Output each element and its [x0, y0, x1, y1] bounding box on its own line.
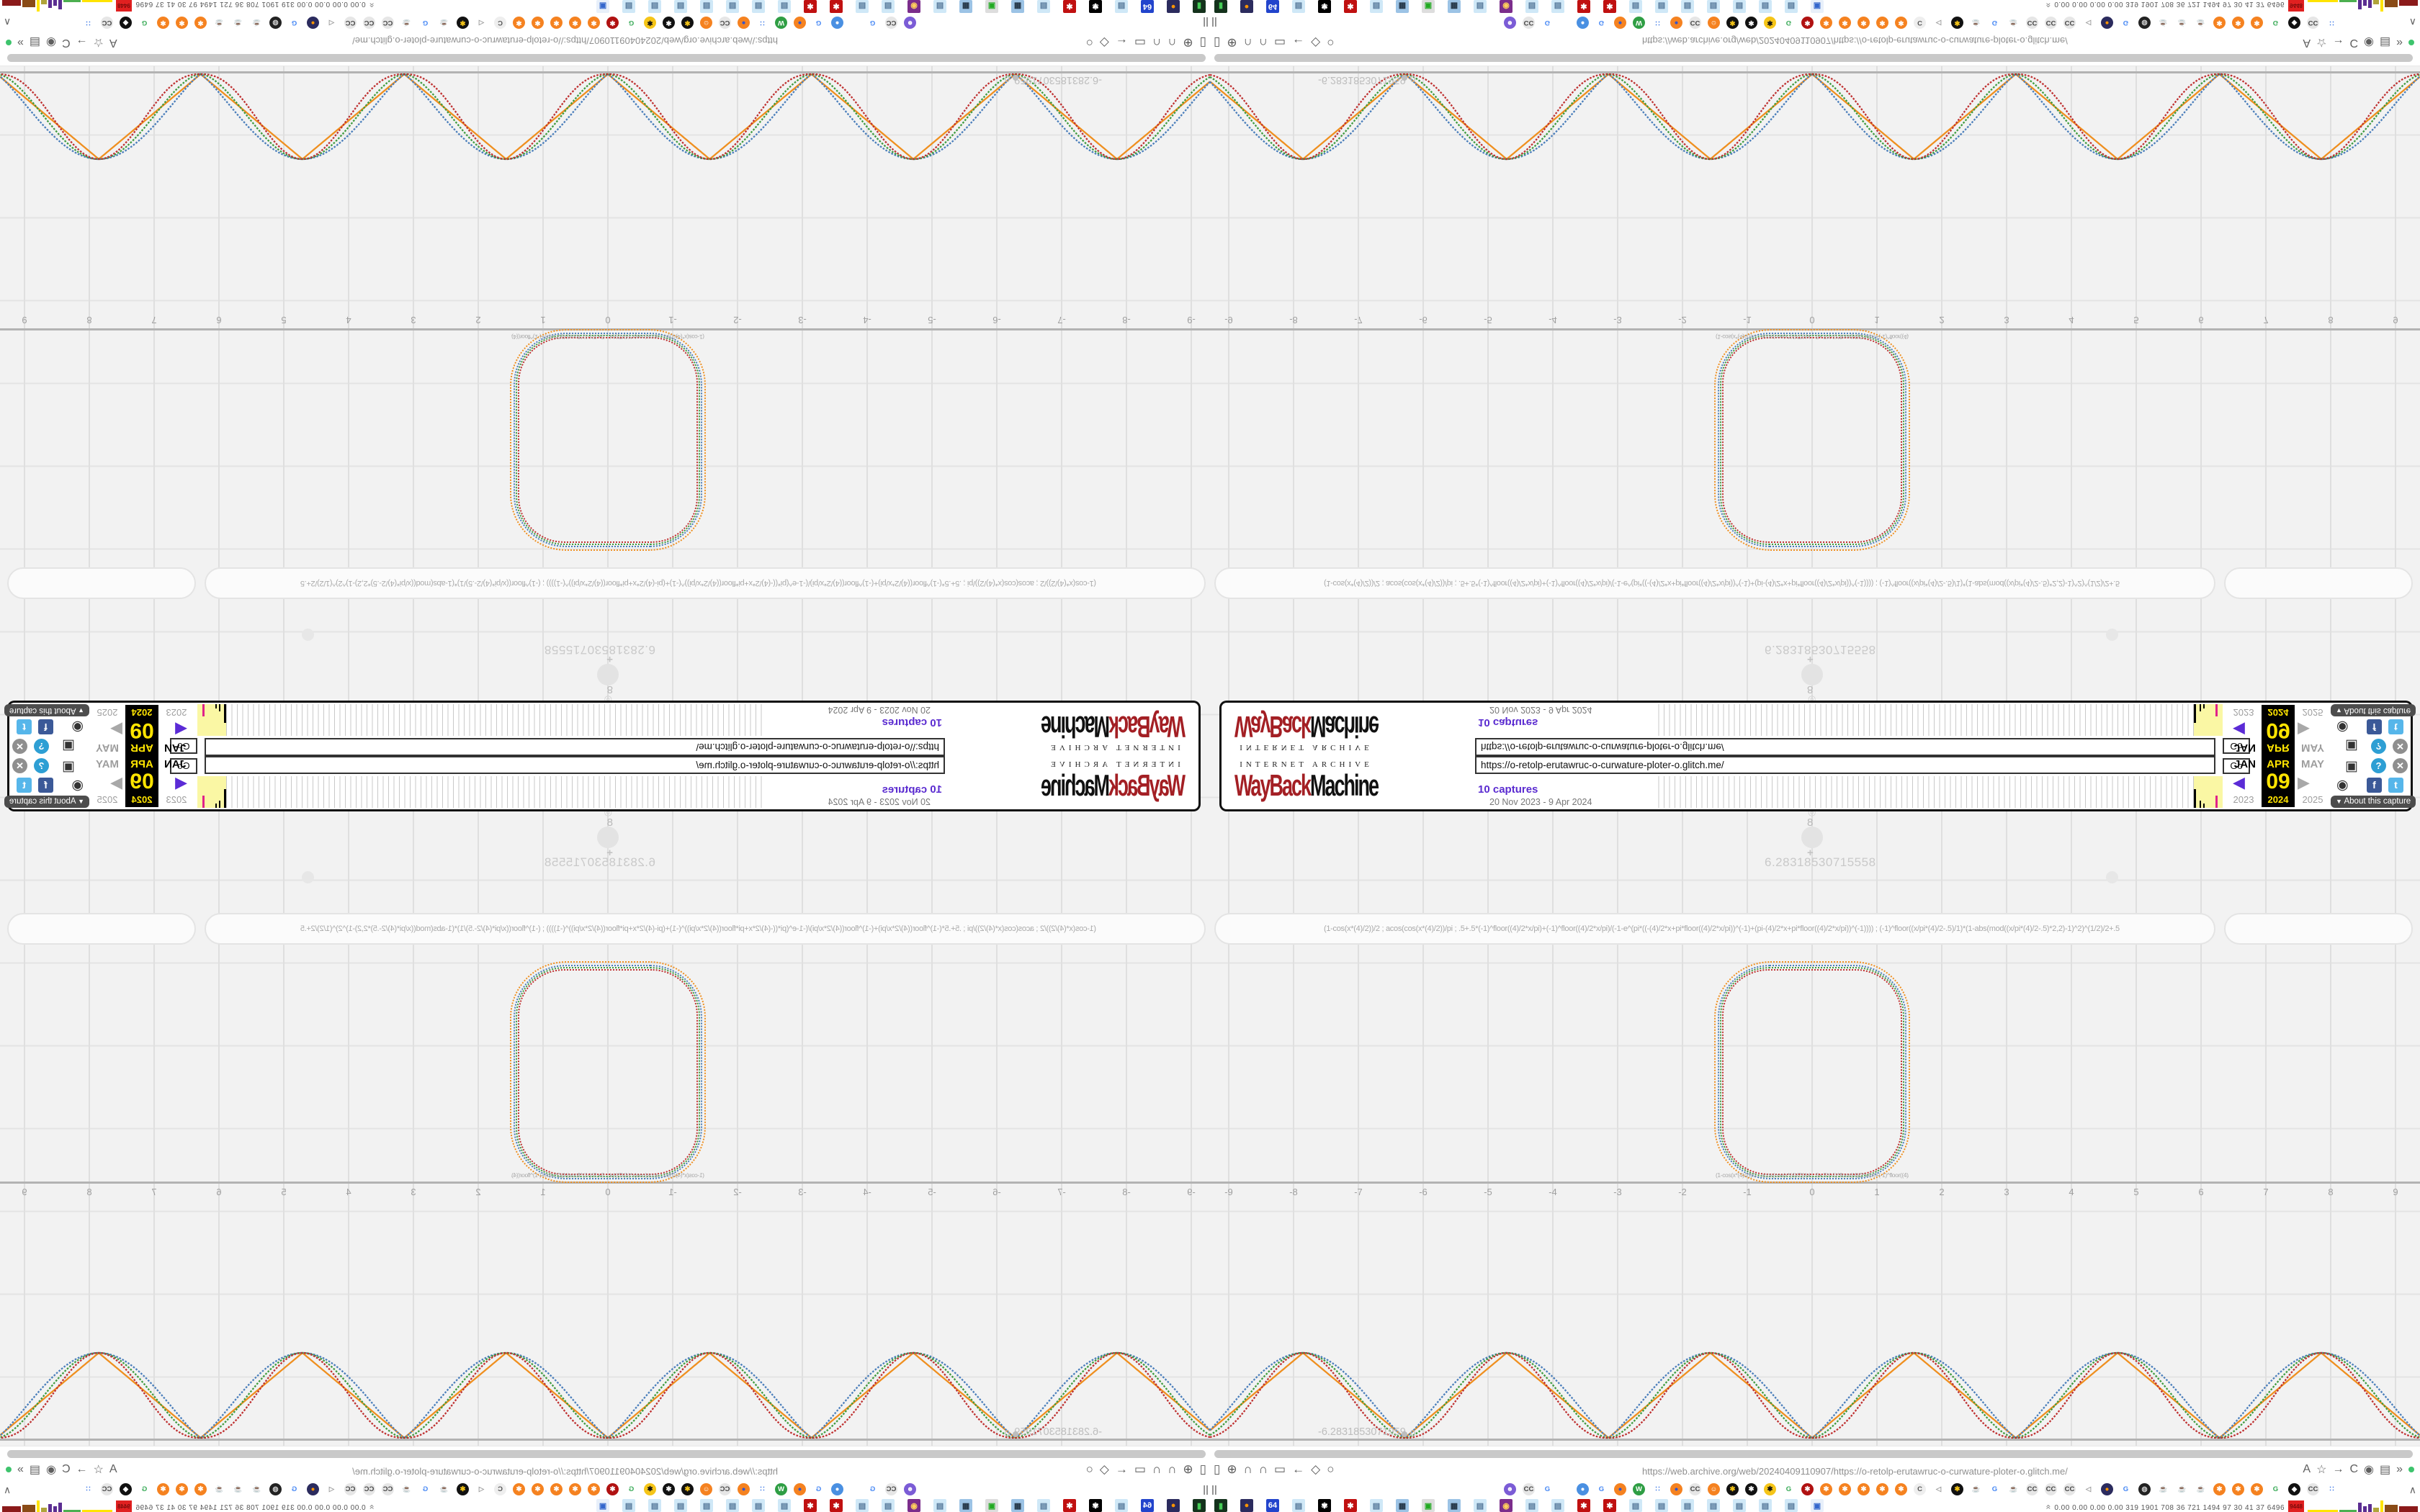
formula-input[interactable]: (1-cos(x*(4)/2))/2 ; acos(cos(x*(4)/2))/…	[1214, 567, 2215, 599]
notepad-tab[interactable]: ▤	[778, 1499, 791, 1512]
cc-favicon[interactable]: CC	[2026, 1483, 2038, 1495]
notepad-tab[interactable]: ▤	[1655, 0, 1668, 13]
cc-favicon[interactable]: CC	[2307, 17, 2319, 29]
java-favicon[interactable]: ☕	[2007, 17, 2020, 29]
forward-icon[interactable]: →	[76, 36, 88, 49]
orange-gear-favicon[interactable]: ✱	[1839, 17, 1851, 29]
address-bar-url[interactable]: https://web.archive.org/web/202404091109…	[352, 35, 778, 46]
forward-icon[interactable]: →	[2332, 36, 2344, 49]
secondary-input[interactable]	[7, 913, 196, 945]
shield-icon[interactable]: ◇	[1311, 1462, 1320, 1477]
captures-link[interactable]: 10 captures	[882, 783, 942, 796]
moth-favicon[interactable]: ✱	[1951, 17, 1963, 29]
muted-speaker-favicon[interactable]: ◁	[2082, 17, 2094, 29]
overflow-chevrons-icon[interactable]: »	[2396, 1463, 2403, 1476]
prev-capture-arrow[interactable]: ◀	[175, 720, 187, 739]
close-icon[interactable]: ✕	[12, 758, 27, 773]
shield-icon[interactable]: ◇	[1100, 1462, 1109, 1477]
google-favicon[interactable]: G	[288, 1483, 300, 1495]
smiley-favicon[interactable]: ☺	[700, 17, 712, 29]
java-favicon[interactable]: ☕	[2007, 1483, 2020, 1495]
orange-gear-favicon[interactable]: ✱	[1876, 1483, 1888, 1495]
lock-icon[interactable]: ○	[1086, 35, 1093, 50]
year-2025[interactable]: 2025	[91, 794, 124, 805]
red-gear-tab[interactable]: ✱	[1577, 0, 1590, 13]
dots-favicon[interactable]: ∷	[1652, 17, 1664, 29]
ghost-favicon[interactable]: ◆	[2288, 1483, 2300, 1495]
prev-capture-arrow[interactable]: ◀	[2233, 773, 2245, 792]
captures-link[interactable]: 10 captures	[1478, 716, 1538, 729]
close-icon[interactable]: ✕	[2393, 739, 2408, 754]
orange-gear-favicon[interactable]: ✱	[1857, 17, 1870, 29]
java-favicon[interactable]: ☕	[400, 17, 413, 29]
next-capture-arrow[interactable]: ▶	[2298, 720, 2310, 739]
year-2023[interactable]: 2023	[160, 794, 193, 805]
forward-icon[interactable]: →	[2332, 1463, 2344, 1476]
google-favicon[interactable]: G	[1783, 17, 1795, 29]
muted-speaker-favicon[interactable]: ◁	[326, 1483, 338, 1495]
monitor-tab[interactable]: ▣	[985, 1499, 998, 1512]
cc-favicon[interactable]: CC	[344, 1483, 357, 1495]
cc-favicon[interactable]: CC	[382, 1483, 394, 1495]
orange-gear-favicon[interactable]: ✱	[1820, 17, 1832, 29]
google-favicon[interactable]: G	[866, 1483, 879, 1495]
ghost-favicon[interactable]: ◆	[120, 1483, 132, 1495]
chevron-up-icon[interactable]: ∧	[4, 16, 11, 28]
shield-favicon[interactable]: W	[775, 17, 787, 29]
dots-favicon[interactable]: ∷	[82, 1483, 94, 1495]
muted-speaker-favicon[interactable]: ◁	[475, 1483, 488, 1495]
month-apr[interactable]: APR	[125, 758, 158, 770]
dark-globe-icon[interactable]: ◉	[46, 1462, 56, 1477]
notepad-tab[interactable]: ▤	[856, 0, 869, 13]
monitor-tab[interactable]: ▣	[1422, 1499, 1435, 1512]
orange-gear-favicon[interactable]: ✱	[1839, 1483, 1851, 1495]
orange-gear-favicon[interactable]: ✱	[2232, 17, 2244, 29]
folder-icon[interactable]: ▭	[1134, 35, 1146, 50]
google-favicon[interactable]: G	[138, 17, 151, 29]
month-jan[interactable]: JAN	[2228, 742, 2262, 754]
java-favicon[interactable]: ☕	[2195, 1483, 2207, 1495]
notepad-tab[interactable]: ▤	[752, 0, 765, 13]
shield-favicon[interactable]: W	[775, 1483, 787, 1495]
orange-favicon[interactable]: ●	[738, 17, 750, 29]
cc-favicon[interactable]: CC	[719, 17, 731, 29]
address-bar-url[interactable]: https://web.archive.org/web/202404091109…	[1642, 35, 2068, 46]
notepad-tab[interactable]: ▤	[726, 0, 739, 13]
orange-gear-favicon[interactable]: ✱	[2232, 1483, 2244, 1495]
orange-gear-favicon[interactable]: ✱	[194, 1483, 207, 1495]
notepad-tab[interactable]: ▤	[1629, 0, 1642, 13]
java-favicon[interactable]: ☕	[232, 17, 244, 29]
secondary-input[interactable]	[2224, 913, 2413, 945]
java-favicon[interactable]: ☕	[2157, 17, 2169, 29]
muted-speaker-favicon[interactable]: ◁	[326, 17, 338, 29]
floppy64-tab[interactable]: 64	[1141, 1499, 1154, 1512]
year-2023[interactable]: 2023	[160, 707, 193, 718]
notepad-tab[interactable]: ▤	[1707, 0, 1720, 13]
calculator-tab[interactable]: ▦	[1011, 0, 1024, 13]
wayback-url-input[interactable]	[205, 738, 945, 756]
headset-icon-2[interactable]: ∩	[1259, 1462, 1268, 1477]
facebook-icon[interactable]: f	[38, 719, 53, 734]
java-favicon[interactable]: ☕	[438, 17, 450, 29]
lock-icon[interactable]: ○	[1327, 1462, 1334, 1477]
notepad-tab[interactable]: ▤	[933, 1499, 946, 1512]
reload-icon[interactable]: C	[2349, 36, 2358, 49]
smiley-favicon[interactable]: ☺	[1708, 17, 1720, 29]
red-gear-tab[interactable]: ✱	[804, 1499, 817, 1512]
notepad-tab[interactable]: ▤	[1759, 0, 1772, 13]
google-favicon[interactable]: G	[1989, 1483, 2001, 1495]
facebook-icon[interactable]: f	[2367, 778, 2382, 793]
chevron-up-icon[interactable]: ∧	[2409, 16, 2416, 28]
cc-favicon[interactable]: CC	[2307, 1483, 2319, 1495]
google-favicon[interactable]: G	[866, 17, 879, 29]
orange-gear-favicon[interactable]: ✱	[513, 1483, 525, 1495]
help-icon[interactable]: ?	[2371, 739, 2386, 754]
discord-favicon[interactable]: ☻	[1504, 1483, 1516, 1495]
month-may[interactable]: MAY	[91, 758, 124, 770]
java-favicon[interactable]: ☕	[400, 1483, 413, 1495]
expand-window-icon[interactable]: ▣	[2345, 758, 2358, 775]
moth-favicon[interactable]: ✱	[457, 17, 469, 29]
captures-link[interactable]: 10 captures	[882, 716, 942, 729]
red-gear-favicon[interactable]: ✱	[606, 1483, 619, 1495]
notepad-tab[interactable]: ▤	[1629, 1499, 1642, 1512]
firefox-favicon[interactable]: ●	[307, 17, 319, 29]
cc-favicon[interactable]: CC	[363, 1483, 375, 1495]
window-tab[interactable]: ▣	[1811, 1499, 1824, 1512]
notepad-tab[interactable]: ▤	[622, 0, 635, 13]
month-apr[interactable]: APR	[125, 742, 158, 754]
wave-marker-dot[interactable]	[1402, 75, 1407, 81]
gap[interactable]	[1560, 17, 1570, 29]
orange-gear-favicon[interactable]: ✱	[569, 17, 581, 29]
moth-favicon[interactable]: ✱	[681, 1483, 694, 1495]
notepad-tab[interactable]: ▤	[1370, 0, 1383, 13]
close-icon[interactable]: ✕	[2393, 758, 2408, 773]
year-2024[interactable]: 2024	[125, 794, 158, 805]
java-favicon[interactable]: ☕	[232, 1483, 244, 1495]
orange-gear-favicon[interactable]: ✱	[176, 17, 188, 29]
month-may[interactable]: MAY	[2296, 758, 2329, 770]
terminal-tab[interactable]: ▮	[1214, 1499, 1227, 1512]
year-2024[interactable]: 2024	[2262, 707, 2295, 718]
address-bar-url[interactable]: https://web.archive.org/web/202404091109…	[1642, 1466, 2068, 1477]
twitter-icon[interactable]: t	[17, 778, 32, 793]
calculator-tab[interactable]: ▦	[1396, 1499, 1409, 1512]
cc-favicon[interactable]: CC	[1689, 17, 1701, 29]
google-favicon[interactable]: G	[1989, 17, 2001, 29]
gap[interactable]	[850, 1483, 860, 1495]
red-gear-tab[interactable]: ✱	[804, 0, 817, 13]
drag-handle-dot[interactable]	[597, 827, 619, 848]
year-2025[interactable]: 2025	[2296, 707, 2329, 718]
dots-favicon[interactable]: ∷	[756, 1483, 768, 1495]
firefox-favicon[interactable]: ●	[2101, 1483, 2113, 1495]
month-apr[interactable]: APR	[2262, 758, 2295, 770]
java-favicon[interactable]: ☕	[251, 17, 263, 29]
notepad-tab[interactable]: ▤	[1115, 0, 1128, 13]
notepad-tab[interactable]: ▤	[1551, 1499, 1564, 1512]
wayback-machine-logo[interactable]: WayBackMachine	[1229, 708, 1384, 743]
trash-icon[interactable]: ▯	[1214, 1462, 1220, 1477]
cc-favicon[interactable]: CC	[101, 1483, 113, 1495]
headset-icon[interactable]: ∩	[1244, 1462, 1252, 1477]
red-gear-favicon[interactable]: ✱	[606, 17, 619, 29]
capture-sparkline[interactable]	[197, 776, 766, 808]
wave-marker-dot[interactable]	[1402, 1431, 1407, 1437]
about-this-capture-button[interactable]: ▼ About this capture	[4, 704, 89, 716]
notepad-tab[interactable]: ▤	[1525, 0, 1538, 13]
folder-icon[interactable]: ▭	[1274, 35, 1286, 50]
globe-icon[interactable]: ⊕	[1183, 1462, 1193, 1477]
orange-gear-favicon[interactable]: ✱	[532, 17, 544, 29]
c-favicon[interactable]: C	[494, 17, 506, 29]
lock-icon[interactable]: ○	[1327, 35, 1334, 50]
year-2024[interactable]: 2024	[2262, 794, 2295, 805]
forward-icon[interactable]: →	[76, 1463, 88, 1476]
back-arrow-icon[interactable]: ←	[1116, 35, 1128, 50]
wave-marker-dot[interactable]	[1013, 1431, 1018, 1437]
orange-gear-favicon[interactable]: ✱	[1820, 1483, 1832, 1495]
month-jan[interactable]: JAN	[158, 758, 192, 770]
java-favicon[interactable]: ☕	[2195, 17, 2207, 29]
calculator-tab[interactable]: ▦	[1011, 1499, 1024, 1512]
captures-link[interactable]: 10 captures	[1478, 783, 1538, 796]
help-icon[interactable]: ?	[2371, 758, 2386, 773]
month-apr[interactable]: APR	[2262, 742, 2295, 754]
drag-handle-dot[interactable]	[1801, 664, 1823, 685]
google-favicon[interactable]: G	[288, 17, 300, 29]
moth-favicon[interactable]: ✱	[681, 17, 694, 29]
owl-tab[interactable]: ◉	[907, 1499, 920, 1512]
back-arrow-icon[interactable]: ←	[1116, 1462, 1128, 1477]
reload-icon[interactable]: C	[62, 1463, 71, 1476]
shield-icon[interactable]: ◇	[1311, 35, 1320, 50]
cc-favicon[interactable]: CC	[1689, 1483, 1701, 1495]
chevron-up-icon[interactable]: ∧	[4, 1484, 11, 1496]
monitor-tab[interactable]: ▣	[985, 0, 998, 13]
twitter-icon[interactable]: t	[2388, 778, 2403, 793]
orange-favicon[interactable]: ●	[1670, 1483, 1682, 1495]
java-favicon[interactable]: ☕	[1970, 17, 1982, 29]
about-this-capture-button[interactable]: ▼ About this capture	[2331, 796, 2416, 808]
java-favicon[interactable]: ☕	[438, 1483, 450, 1495]
firefox-tab[interactable]: ●	[1167, 1499, 1180, 1512]
notepad-tab[interactable]: ▤	[1474, 1499, 1487, 1512]
year-2025[interactable]: 2025	[2296, 794, 2329, 805]
floppy64-tab[interactable]: 64	[1141, 0, 1154, 13]
inkblot-tab[interactable]: ✾	[1318, 1499, 1331, 1512]
orange-gear-favicon[interactable]: ✱	[550, 1483, 563, 1495]
firefox-favicon[interactable]: ●	[307, 1483, 319, 1495]
twitter-icon[interactable]: t	[2388, 719, 2403, 734]
c-favicon[interactable]: C	[1914, 1483, 1926, 1495]
disc-favicon[interactable]: ◍	[269, 1483, 282, 1495]
red-gear-tab[interactable]: ✱	[1344, 0, 1357, 13]
notepad-tab[interactable]: ▤	[1037, 0, 1050, 13]
screenshot-icon[interactable]: ◉	[2336, 777, 2349, 793]
shield-favicon[interactable]: W	[1633, 1483, 1645, 1495]
java-favicon[interactable]: ☕	[213, 1483, 225, 1495]
yellow-gear-favicon[interactable]: ✱	[644, 17, 656, 29]
monitor-tab[interactable]: ▣	[1422, 0, 1435, 13]
wayback-machine-logo[interactable]: WayBackMachine	[1036, 708, 1191, 743]
wayback-machine-logo[interactable]: WayBackMachine	[1229, 769, 1384, 804]
notepad-tab[interactable]: ▤	[1707, 1499, 1720, 1512]
capture-sparkline[interactable]	[1654, 704, 2223, 736]
window-tab[interactable]: ▣	[596, 0, 609, 13]
google-favicon[interactable]: G	[625, 17, 637, 29]
orange-gear-favicon[interactable]: ✱	[1895, 1483, 1907, 1495]
google-favicon[interactable]: G	[812, 17, 825, 29]
google-favicon[interactable]: G	[1541, 1483, 1554, 1495]
terminal-tab[interactable]: ▮	[1193, 0, 1206, 13]
google-favicon[interactable]: G	[1595, 17, 1608, 29]
notepad-tab[interactable]: ▤	[1785, 1499, 1798, 1512]
orange-gear-favicon[interactable]: ✱	[569, 1483, 581, 1495]
wayback-machine-logo[interactable]: WayBackMachine	[1036, 769, 1191, 804]
window-tab[interactable]: ▣	[596, 1499, 609, 1512]
wave-marker-dot[interactable]	[1013, 75, 1018, 81]
google-favicon[interactable]: G	[2269, 1483, 2282, 1495]
expand-window-icon[interactable]: ▣	[62, 758, 75, 775]
muted-speaker-favicon[interactable]: ◁	[1932, 1483, 1945, 1495]
share-icon[interactable]: ▤	[2380, 1462, 2390, 1477]
next-capture-arrow[interactable]: ▶	[2298, 773, 2310, 792]
wayback-url-input[interactable]	[1475, 756, 2215, 774]
bookmark-star-icon[interactable]: ☆	[94, 35, 104, 50]
red-gear-tab[interactable]: ✱	[830, 1499, 843, 1512]
trash-icon[interactable]: ▯	[1200, 1462, 1206, 1477]
screenshot-icon[interactable]: ◉	[71, 777, 84, 793]
firefox-tab[interactable]: ●	[1167, 0, 1180, 13]
headset-icon-2[interactable]: ∩	[1152, 35, 1161, 50]
trash-icon[interactable]: ▯	[1214, 35, 1220, 50]
orange-gear-favicon[interactable]: ✱	[588, 17, 600, 29]
floppy64-tab[interactable]: 64	[1266, 0, 1279, 13]
notepad-tab[interactable]: ▤	[1785, 0, 1798, 13]
floppy64-tab[interactable]: 64	[1266, 1499, 1279, 1512]
orange-gear-favicon[interactable]: ✱	[2213, 1483, 2226, 1495]
orange-gear-favicon[interactable]: ✱	[157, 17, 169, 29]
calculator-tab[interactable]: ▦	[1396, 0, 1409, 13]
red-gear-favicon[interactable]: ✱	[1801, 1483, 1814, 1495]
google-favicon[interactable]: G	[1595, 1483, 1608, 1495]
translate-icon[interactable]: A	[2303, 36, 2311, 49]
notepad-tab[interactable]: ▤	[1037, 1499, 1050, 1512]
translate-icon[interactable]: A	[109, 1463, 117, 1476]
prev-capture-arrow[interactable]: ◀	[175, 773, 187, 792]
capture-day[interactable]: 09	[125, 770, 158, 794]
disc-favicon[interactable]: ◍	[2138, 1483, 2151, 1495]
google-favicon[interactable]: G	[1541, 17, 1554, 29]
java-favicon[interactable]: ☕	[2176, 17, 2188, 29]
year-2025[interactable]: 2025	[91, 707, 124, 718]
about-this-capture-button[interactable]: ▼ About this capture	[2331, 704, 2416, 716]
trash-icon[interactable]: ▯	[1200, 35, 1206, 50]
month-may[interactable]: MAY	[2296, 742, 2329, 754]
share-icon[interactable]: ▤	[2380, 35, 2390, 50]
notepad-tab[interactable]: ▤	[1733, 0, 1746, 13]
horizontal-scrollbar[interactable]	[1214, 54, 2413, 62]
back-arrow-icon[interactable]: ←	[1292, 35, 1304, 50]
dots-favicon[interactable]: ∷	[756, 17, 768, 29]
discord-favicon[interactable]: ☻	[904, 1483, 916, 1495]
dark-globe-icon[interactable]: ◉	[2364, 1462, 2374, 1477]
owl-tab[interactable]: ◉	[907, 0, 920, 13]
orange-favicon[interactable]: ●	[1614, 1483, 1626, 1495]
dark-globe-icon[interactable]: ◉	[2364, 35, 2374, 50]
dots-favicon[interactable]: ∷	[2326, 1483, 2338, 1495]
red-gear-tab[interactable]: ✱	[1603, 0, 1616, 13]
smiley-favicon[interactable]: ☺	[700, 1483, 712, 1495]
inkblot-tab[interactable]: ✾	[1089, 0, 1102, 13]
notepad-tab[interactable]: ▤	[622, 1499, 635, 1512]
cc-favicon[interactable]: CC	[344, 17, 357, 29]
notepad-tab[interactable]: ▤	[648, 1499, 661, 1512]
facebook-icon[interactable]: f	[2367, 719, 2382, 734]
drag-handle-dot[interactable]	[597, 664, 619, 685]
overflow-chevrons-icon[interactable]: »	[17, 1463, 24, 1476]
google-favicon[interactable]: G	[138, 1483, 151, 1495]
shield-icon[interactable]: ◇	[1100, 35, 1109, 50]
gear-favicon[interactable]: ✱	[663, 17, 675, 29]
capture-day[interactable]: 09	[2262, 770, 2295, 794]
notepad-tab[interactable]: ▤	[1655, 1499, 1668, 1512]
bookmark-star-icon[interactable]: ☆	[2316, 35, 2326, 50]
yellow-gear-favicon[interactable]: ✱	[1764, 1483, 1776, 1495]
formula-input[interactable]: (1-cos(x*(4)/2))/2 ; acos(cos(x*(4)/2))/…	[205, 913, 1206, 945]
moth-favicon[interactable]: ✱	[1951, 1483, 1963, 1495]
headset-icon[interactable]: ∩	[1244, 35, 1252, 50]
back-arrow-icon[interactable]: ←	[1292, 1462, 1304, 1477]
horizontal-scrollbar[interactable]	[7, 54, 1206, 62]
disc-favicon[interactable]: ◍	[2138, 17, 2151, 29]
capture-day[interactable]: 09	[125, 718, 158, 742]
orange-gear-favicon[interactable]: ✱	[194, 17, 207, 29]
cc-favicon[interactable]: CC	[719, 1483, 731, 1495]
horizontal-scrollbar[interactable]	[7, 1450, 1206, 1458]
screenshot-icon[interactable]: ◉	[71, 719, 84, 735]
gap[interactable]	[1560, 1483, 1570, 1495]
wayback-url-input[interactable]	[1475, 738, 2215, 756]
orange-gear-favicon[interactable]: ✱	[513, 17, 525, 29]
help-icon[interactable]: ?	[34, 739, 49, 754]
cc-favicon[interactable]: CC	[2063, 1483, 2076, 1495]
dots-favicon[interactable]: ∷	[2326, 17, 2338, 29]
share-icon[interactable]: ▤	[30, 35, 40, 50]
window-tab[interactable]: ▣	[1811, 0, 1824, 13]
notepad-tab[interactable]: ▤	[700, 1499, 713, 1512]
google-favicon[interactable]: G	[1783, 1483, 1795, 1495]
moth-favicon[interactable]: ✱	[457, 1483, 469, 1495]
calculator-tab[interactable]: ▦	[959, 1499, 972, 1512]
orange-favicon[interactable]: ●	[1670, 17, 1682, 29]
red-gear-tab[interactable]: ✱	[1577, 1499, 1590, 1512]
capture-day[interactable]: 09	[2262, 718, 2295, 742]
orange-gear-favicon[interactable]: ✱	[1895, 17, 1907, 29]
secondary-input[interactable]	[2224, 567, 2413, 599]
notepad-tab[interactable]: ▤	[674, 1499, 687, 1512]
chat-favicon[interactable]: ●	[1577, 17, 1589, 29]
muted-speaker-favicon[interactable]: ◁	[2082, 1483, 2094, 1495]
orange-gear-favicon[interactable]: ✱	[2251, 1483, 2263, 1495]
notepad-tab[interactable]: ▤	[1370, 1499, 1383, 1512]
owl-tab[interactable]: ◉	[1500, 1499, 1512, 1512]
